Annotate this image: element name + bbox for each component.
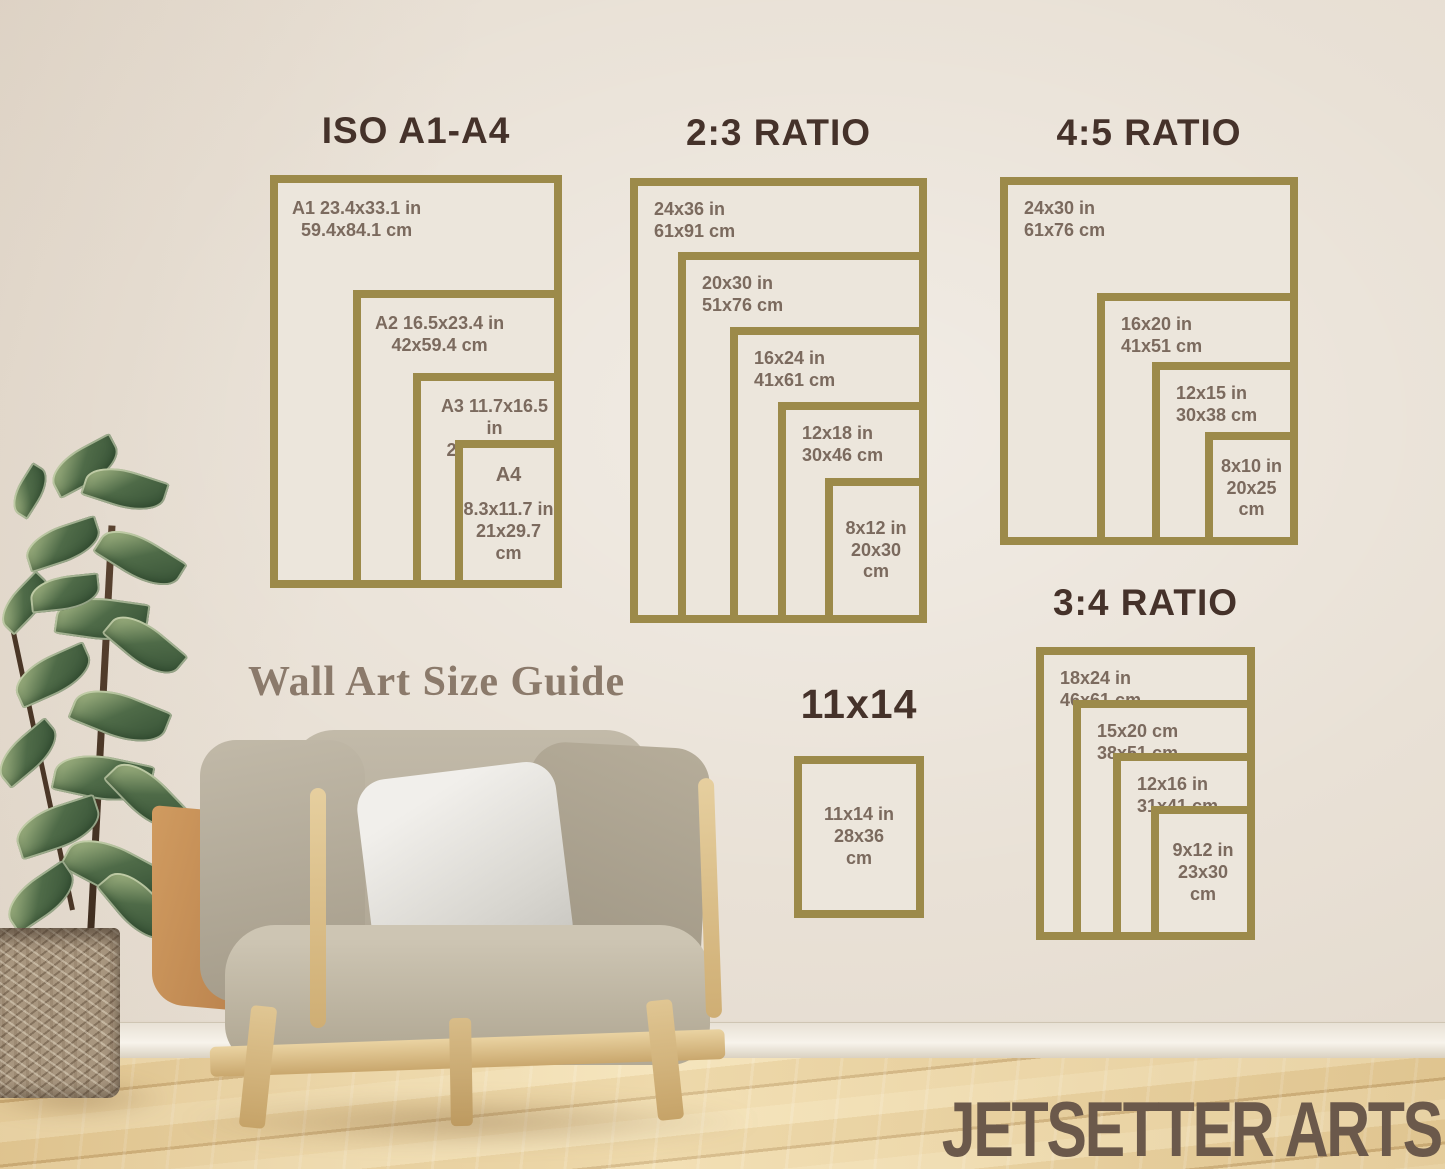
- size-label-11x14: 11x14 in 28x36 cm: [824, 804, 894, 870]
- size-text-line: 11x14 in: [824, 804, 894, 826]
- chair-leg-center: [449, 1018, 473, 1126]
- group-title-11x14: 11x14: [774, 684, 944, 725]
- plant-basket: [0, 928, 120, 1098]
- chair-wood-post-left: [310, 788, 326, 1028]
- size-text-line: 28x36: [824, 826, 894, 848]
- watermark-title: Wall Art Size Guide: [248, 658, 625, 706]
- plant-leaf: [5, 462, 55, 520]
- size-text-line: cm: [824, 848, 894, 870]
- plant-leaf: [20, 515, 105, 573]
- frame-11x14: 11x14 in 28x36 cm: [794, 756, 924, 918]
- armchair: [150, 728, 750, 1158]
- wall-art-size-guide-poster: ISO A1-A4 A1 23.4x33.1 in 59.4x84.1 cm A…: [0, 0, 1445, 1169]
- brand-logo-text: JETSETTER ARTS: [942, 1089, 1441, 1169]
